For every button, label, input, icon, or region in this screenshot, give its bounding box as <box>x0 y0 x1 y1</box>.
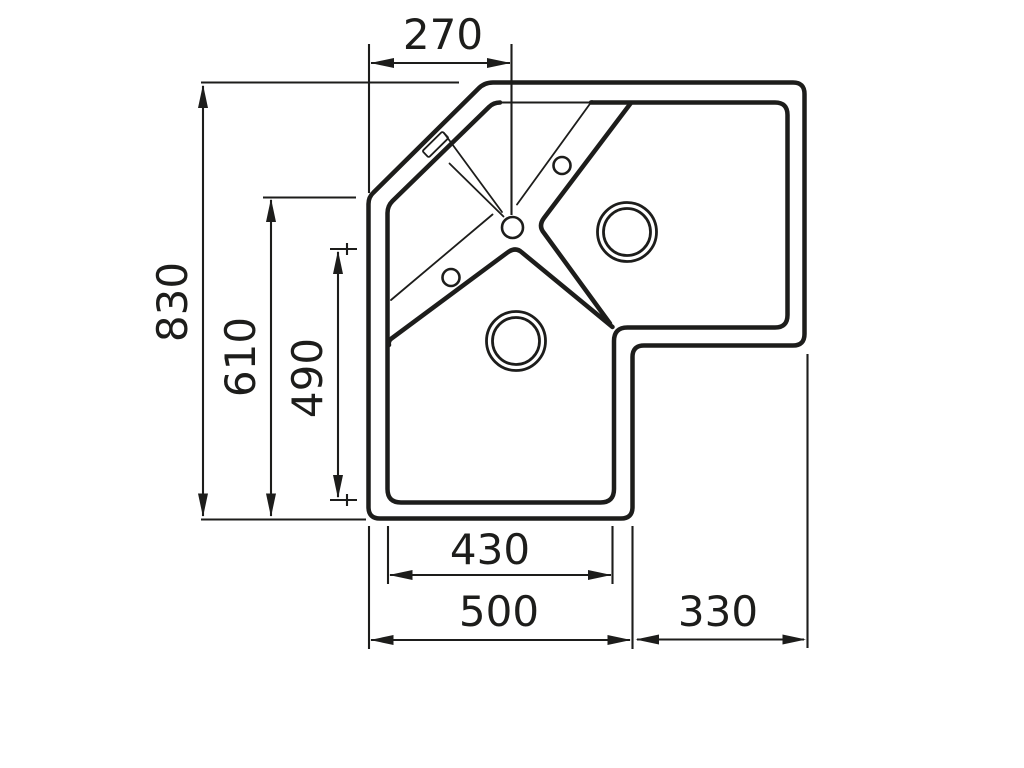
groove-lower-left <box>391 215 493 301</box>
arrowhead-right <box>588 570 612 580</box>
groove-wedge-a <box>444 133 502 212</box>
dim-label-610: 610 <box>216 317 265 397</box>
groove-wedge-b <box>450 164 504 217</box>
arrowhead-left <box>370 635 394 645</box>
arrowhead-down <box>266 494 276 518</box>
arrowhead-up <box>333 251 343 275</box>
right-bowl-chamfer <box>541 104 631 324</box>
drain-inner-circle <box>604 209 651 256</box>
drain-inner-circle <box>493 318 540 365</box>
dimension-490: 490 <box>283 243 357 506</box>
arrowhead-right <box>608 635 632 645</box>
drain-outer-circle <box>487 312 546 371</box>
arrowhead-down <box>198 494 208 518</box>
dim-label-490: 490 <box>283 338 332 418</box>
sink-outer-outline <box>369 83 805 519</box>
dimension-330: 330 <box>636 354 808 648</box>
deck-hole-right <box>554 157 571 174</box>
dim-label-500: 500 <box>459 587 539 636</box>
arrowhead-down <box>333 475 343 499</box>
arrowhead-left <box>636 635 660 645</box>
bottom-bowl-drain <box>487 312 546 371</box>
technical-drawing-canvas: 270 830 610 490 <box>0 0 1024 768</box>
arrowhead-left <box>389 570 413 580</box>
sink-drawing-svg: 270 830 610 490 <box>0 0 1024 768</box>
arrowhead-up <box>198 85 208 109</box>
dim-label-330: 330 <box>678 587 758 636</box>
deck-grooves <box>391 101 592 300</box>
dimension-830: 830 <box>148 83 459 520</box>
dimension-430: 430 <box>388 525 613 584</box>
faucet-hole <box>502 217 523 238</box>
arrowhead-left <box>371 58 395 68</box>
arrowhead-up <box>266 199 276 223</box>
sink-body <box>369 83 805 519</box>
deck-hole-left <box>443 269 460 286</box>
bowl-separator-ridge <box>389 250 613 346</box>
drain-outer-circle <box>598 203 657 262</box>
arrowhead-right <box>783 635 807 645</box>
arrowhead-right <box>487 58 511 68</box>
dim-label-270: 270 <box>403 10 483 59</box>
dim-label-830: 830 <box>148 262 197 342</box>
groove-upper-right <box>517 101 592 205</box>
dim-label-430: 430 <box>450 525 530 574</box>
dimension-270: 270 <box>369 10 512 215</box>
right-bowl-drain <box>598 203 657 262</box>
